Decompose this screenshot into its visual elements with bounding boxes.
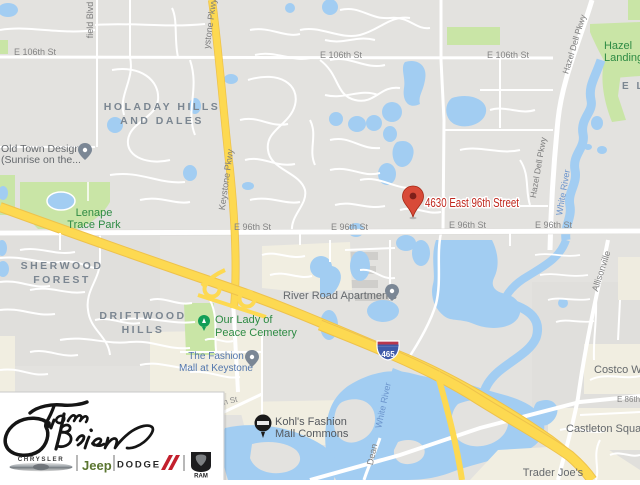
svg-text:Costco Who: Costco Who	[594, 364, 640, 376]
svg-text:FOREST: FOREST	[33, 274, 91, 286]
svg-text:4630 East 96th Street: 4630 East 96th Street	[425, 196, 519, 210]
svg-text:E 106th St: E 106th St	[320, 50, 363, 60]
svg-text:Lenape: Lenape	[76, 207, 113, 219]
svg-text:DODGE: DODGE	[117, 460, 161, 471]
svg-text:field Blvd: field Blvd	[85, 2, 95, 39]
svg-text:River Road Apartments: River Road Apartments	[283, 290, 397, 302]
svg-text:E L: E L	[622, 81, 640, 92]
svg-text:Hazel: Hazel	[604, 40, 632, 52]
svg-text:465: 465	[381, 350, 395, 359]
svg-text:AND DALES: AND DALES	[120, 115, 204, 127]
svg-text:Landing Par: Landing Par	[604, 52, 640, 64]
svg-text:Kohl's Fashion: Kohl's Fashion	[275, 416, 347, 428]
svg-text:E 96th St: E 96th St	[234, 222, 272, 232]
svg-text:Trader Joe's: Trader Joe's	[523, 467, 584, 479]
svg-text:HILLS: HILLS	[122, 324, 165, 336]
svg-text:E 86th S: E 86th S	[617, 395, 640, 404]
svg-text:E 96th St: E 96th St	[535, 220, 573, 230]
svg-text:The Fashion: The Fashion	[188, 351, 244, 362]
svg-text:E 106th St: E 106th St	[487, 50, 530, 60]
svg-text:Trace Park: Trace Park	[67, 219, 121, 231]
svg-text:Mall Commons: Mall Commons	[275, 428, 349, 440]
svg-text:DRIFTWOOD: DRIFTWOOD	[99, 310, 186, 322]
svg-text:Peace Cemetery: Peace Cemetery	[215, 327, 297, 339]
svg-text:Our Lady of: Our Lady of	[215, 314, 273, 326]
svg-text:E 96th St: E 96th St	[331, 222, 369, 232]
svg-text:(Sunrise on the...: (Sunrise on the...	[1, 154, 81, 166]
svg-text:Mall at Keystone: Mall at Keystone	[179, 363, 253, 374]
svg-text:Jeep: Jeep	[82, 458, 112, 473]
svg-text:E 96th St: E 96th St	[449, 220, 487, 230]
svg-text:RAM: RAM	[194, 474, 208, 480]
svg-text:CHRYSLER: CHRYSLER	[18, 456, 65, 463]
svg-text:HOLADAY HILLS: HOLADAY HILLS	[104, 101, 221, 113]
svg-text:SHERWOOD: SHERWOOD	[21, 260, 104, 272]
svg-text:E 106th St: E 106th St	[14, 47, 57, 57]
svg-text:Castleton Square: Castleton Square	[566, 423, 640, 435]
